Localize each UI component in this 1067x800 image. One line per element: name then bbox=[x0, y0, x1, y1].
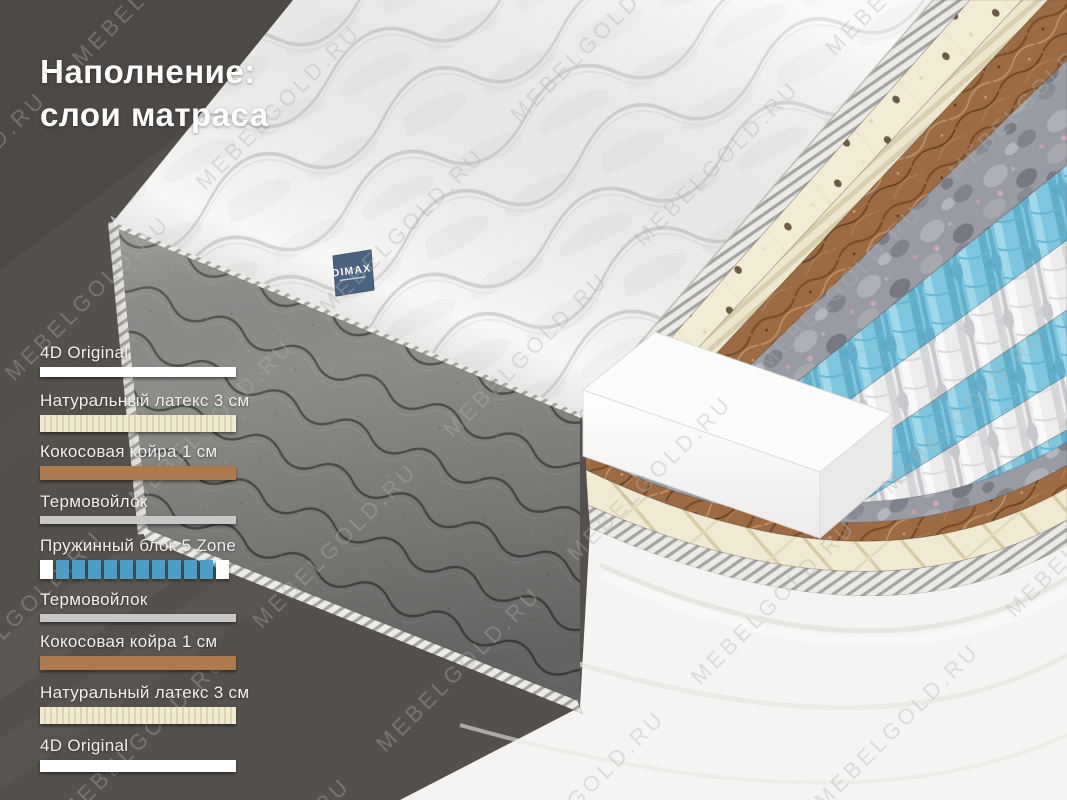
layer-row: Кокосовая койра 1 см bbox=[40, 632, 270, 670]
spring-swatch-cell bbox=[120, 560, 133, 579]
layer-row: Кокосовая койра 1 см bbox=[40, 442, 270, 480]
layer-label: 4D Original bbox=[40, 343, 270, 363]
spring-swatch-cell bbox=[72, 560, 85, 579]
layer-row: 4D Original bbox=[40, 736, 270, 772]
spring-swatch-cell bbox=[136, 560, 149, 579]
cover-layer-swatch bbox=[40, 367, 236, 377]
layer-row: Термовойлок bbox=[40, 590, 270, 622]
layer-row: Пружинный блок 5 Zone bbox=[40, 536, 270, 579]
layer-label: Термовойлок bbox=[40, 492, 270, 512]
coir-layer-swatch bbox=[40, 466, 236, 480]
layer-label: Термовойлок bbox=[40, 590, 270, 610]
layer-label: Кокосовая койра 1 см bbox=[40, 632, 270, 652]
layer-label: Кокосовая койра 1 см bbox=[40, 442, 270, 462]
layer-label: Натуральный латекс 3 см bbox=[40, 683, 270, 703]
cover-layer-swatch bbox=[40, 760, 236, 772]
layer-row: Термовойлок bbox=[40, 492, 270, 524]
layer-row: Натуральный латекс 3 см bbox=[40, 391, 270, 432]
spring-swatch-cell bbox=[40, 560, 53, 579]
layer-row: Натуральный латекс 3 см bbox=[40, 683, 270, 724]
layer-row: 4D Original bbox=[40, 343, 270, 377]
layer-label: Пружинный блок 5 Zone bbox=[40, 536, 270, 556]
layer-label: 4D Original bbox=[40, 736, 270, 756]
spring-swatch-cell bbox=[88, 560, 101, 579]
felt-layer-swatch bbox=[40, 516, 236, 524]
mattress-infographic: MEBELGOLD.RU DIMAX bbox=[0, 0, 1067, 800]
coir-layer-swatch bbox=[40, 656, 236, 670]
spring-swatch-cell bbox=[104, 560, 117, 579]
spring-swatch-cell bbox=[56, 560, 69, 579]
layer-legend: 4D OriginalНатуральный латекс 3 смКокосо… bbox=[0, 0, 300, 800]
latex-layer-swatch bbox=[40, 415, 236, 432]
spring-swatch-cell bbox=[200, 560, 213, 579]
felt-layer-swatch bbox=[40, 614, 236, 622]
latex-layer-swatch bbox=[40, 707, 236, 724]
spring-zone-swatch bbox=[40, 560, 270, 579]
spring-swatch-cell bbox=[184, 560, 197, 579]
spring-swatch-cell bbox=[168, 560, 181, 579]
spring-swatch-cell bbox=[216, 560, 229, 579]
layer-label: Натуральный латекс 3 см bbox=[40, 391, 270, 411]
spring-swatch-cell bbox=[152, 560, 165, 579]
